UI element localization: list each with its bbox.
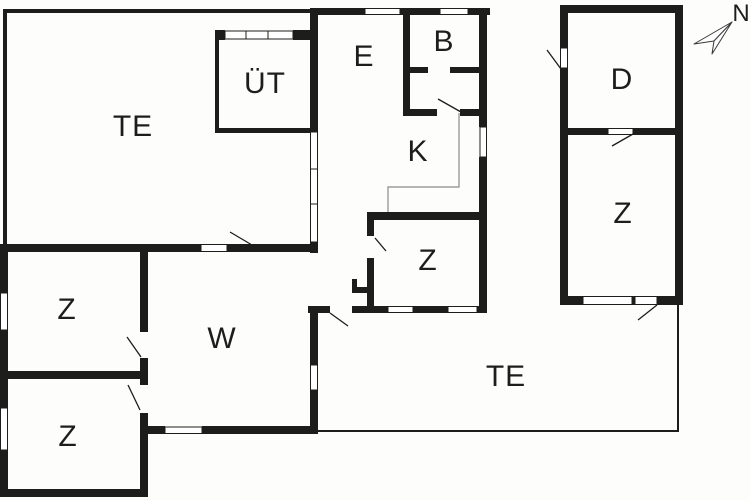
- room-label-z-lower-left: Z: [58, 422, 77, 452]
- compass-north-label: N: [732, 2, 749, 26]
- room-label-z-upper-left: Z: [57, 295, 76, 325]
- room-label-z-middle: Z: [418, 246, 437, 276]
- room-label-ut: ÜT: [244, 69, 286, 99]
- walls: [0, 5, 683, 497]
- room-label-z-right: Z: [613, 199, 632, 229]
- room-label-b: B: [433, 27, 454, 57]
- north-arrow-icon: [694, 22, 732, 54]
- room-label-d: D: [611, 65, 634, 95]
- room-label-te-top: TE: [113, 112, 153, 142]
- door-swings: [127, 50, 657, 410]
- room-label-te-bottom: TE: [486, 362, 526, 392]
- room-label-w: W: [207, 324, 236, 354]
- plan-canvas: [0, 0, 750, 500]
- floor-plan: TE ÜT E B K Z D Z Z Z W TE N: [0, 0, 750, 500]
- room-label-e: E: [353, 42, 374, 72]
- room-label-k: K: [407, 137, 428, 167]
